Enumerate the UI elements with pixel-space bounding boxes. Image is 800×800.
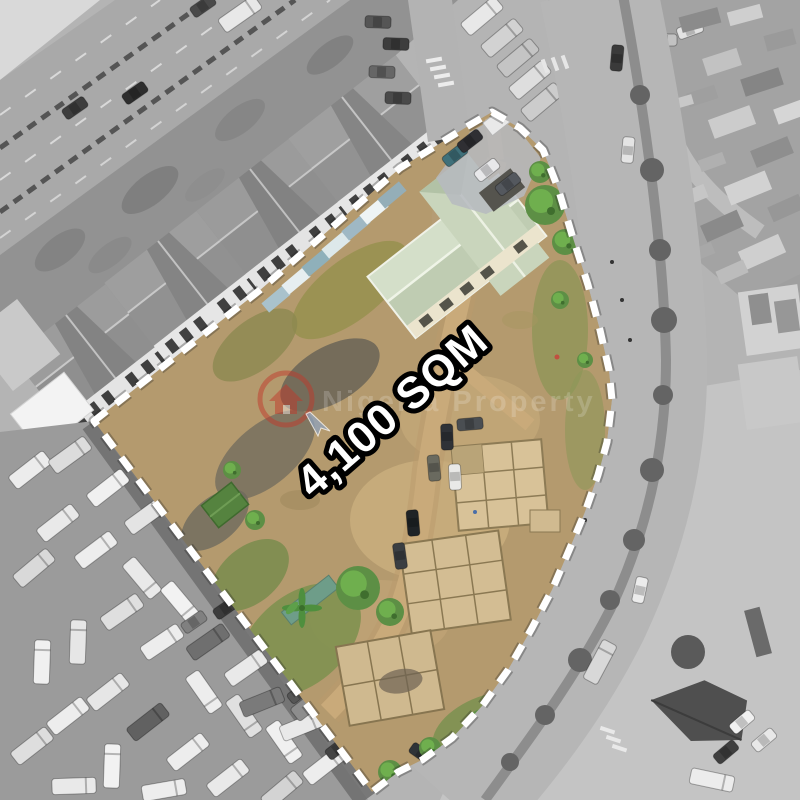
vehicle <box>365 16 391 29</box>
ruin-slab <box>399 530 511 633</box>
vehicle <box>369 66 395 79</box>
parked-car <box>406 510 420 537</box>
ruin-slab <box>336 630 444 725</box>
road-vehicle <box>610 45 624 72</box>
parked-car <box>457 417 484 431</box>
ruin-slab <box>530 510 560 532</box>
parked-bus <box>52 777 97 795</box>
parked-bus <box>103 744 121 789</box>
tree-gray <box>671 635 705 669</box>
object-dot <box>473 510 477 514</box>
parked-car <box>441 424 454 450</box>
parked-car <box>448 464 461 491</box>
parked-truck <box>427 455 441 482</box>
parked-bus <box>69 620 87 665</box>
aerial-photo-canvas: Nigeria Property 4,100 SQM <box>0 0 800 800</box>
vehicle <box>385 92 411 105</box>
road-vehicle <box>621 137 635 164</box>
person-dot <box>555 355 560 360</box>
vehicle <box>383 38 409 51</box>
aerial-listing-photo: Nigeria Property 4,100 SQM <box>0 0 800 800</box>
parked-bus <box>33 640 51 685</box>
